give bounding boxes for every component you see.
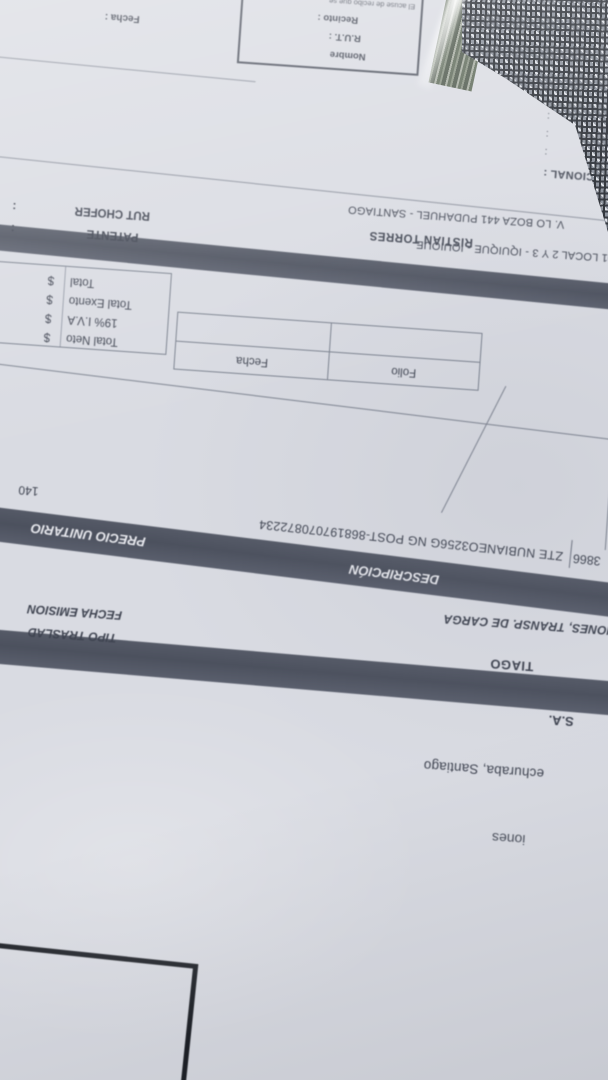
table-left-border: [605, 428, 608, 550]
currency-sign: $: [47, 274, 54, 286]
field-colon: :: [544, 146, 548, 157]
field-colon: :: [546, 128, 550, 139]
fecha-field-label: Fecha :: [104, 11, 140, 24]
photo-of-invoice: iones echuraba, Santiago S.A. TIAGO TIPO…: [0, 0, 608, 1080]
company-address-fragment: echuraba, Santiago: [423, 758, 544, 781]
company-suffix-fragment: S.A.: [548, 713, 574, 730]
table-void-diagonal-line: [441, 386, 507, 513]
currency-sign: $: [45, 311, 52, 323]
recinto-label: Recinto :: [317, 12, 358, 26]
fecha-emision-label: FECHA EMISION: [27, 602, 123, 623]
company-name-fragment: iones: [491, 830, 526, 848]
fecha-label: Fecha: [175, 350, 329, 373]
item-unit-price: 140: [18, 483, 39, 498]
currency-sign: $: [46, 292, 53, 304]
acuse-text-fragment: El acuse de recibo que se: [251, 0, 415, 11]
city-fragment: TIAGO: [489, 656, 534, 674]
origin-address-fragment: V. LO BOZA 441 PUDAHUEL - SANTIAGO: [348, 203, 565, 230]
reference-box: Folio Fecha: [173, 312, 482, 391]
folio-label: Folio: [328, 360, 478, 382]
rut-label: R.U.T. :: [328, 31, 361, 44]
description-column-header: DESCRIPCIÓN: [348, 562, 439, 588]
rut-chofer-label: RUT CHOFER: [74, 204, 150, 221]
rut-guia-frame-box: [0, 932, 198, 1080]
acuse-de-recibo-box: Nombre R.U.T. : Recinto : El acuse de re…: [237, 0, 429, 76]
totals-box: Total Neto $ 19% I.V.A $ Total Exento $ …: [0, 261, 172, 355]
item-code: 3866: [572, 551, 601, 568]
nombre-label: Nombre: [329, 49, 366, 62]
currency-sign: $: [43, 330, 50, 342]
separator-rule: [0, 54, 256, 83]
rut-chofer-colon: :: [12, 200, 17, 212]
giro-fragment: IONES, TRANSP. DE CARGA: [443, 612, 608, 638]
dispatch-guide-document: iones echuraba, Santiago S.A. TIAGO TIPO…: [0, 0, 608, 1080]
patente-colon: :: [11, 222, 16, 234]
unit-price-column-header: PRECIO UNITARIO: [30, 521, 146, 550]
total-neto-label: Total Neto: [66, 332, 163, 351]
field-colon: :: [547, 110, 551, 121]
